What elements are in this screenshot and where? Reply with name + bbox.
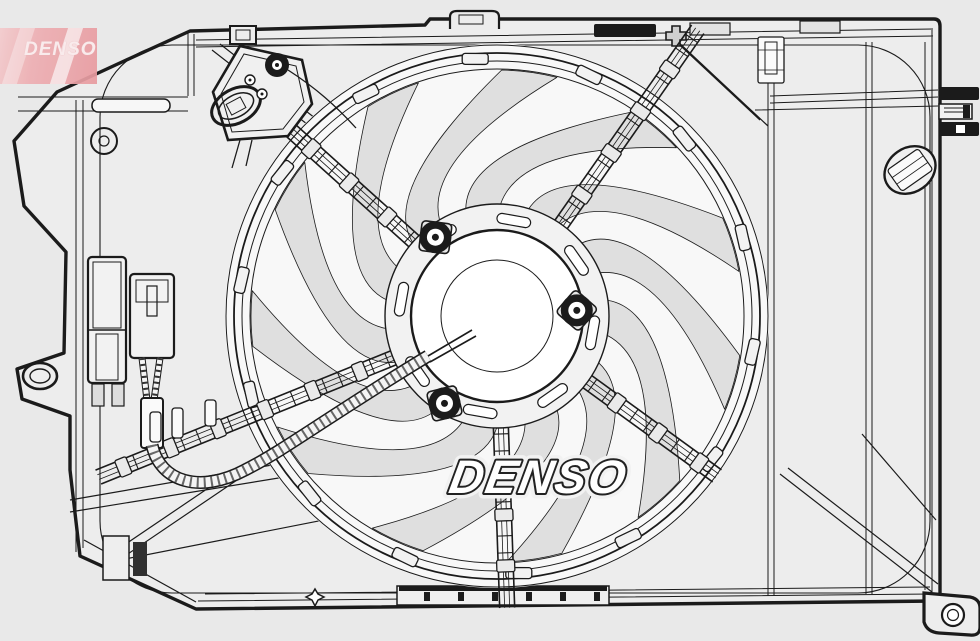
- fan-assembly-drawing: DENSO DENSO: [0, 0, 980, 641]
- top-mounting-tab: [450, 11, 499, 29]
- motor-face: [411, 230, 583, 402]
- left-bracket-slot: [92, 99, 170, 112]
- top-clip-block-1: [690, 23, 730, 35]
- round-connector-center: [275, 63, 279, 67]
- denso-logo-text: DENSO: [24, 39, 97, 61]
- motor-bolt: [419, 220, 452, 253]
- right-clip-top: [939, 87, 979, 100]
- denso-watermark-text: DENSO: [446, 451, 632, 504]
- top-right-connector-block: [758, 37, 784, 83]
- denso-watermark: DENSO DENSO: [446, 451, 632, 504]
- fan-hub: [385, 204, 609, 428]
- top-black-clip: [594, 24, 656, 37]
- motor-bolt: [426, 385, 462, 421]
- screw-1-dot: [249, 79, 252, 82]
- denso-logo: DENSO: [0, 28, 97, 84]
- bottom-left-block: [103, 536, 129, 580]
- bottom-left-dark-block: [133, 542, 147, 576]
- top-clip-block-2: [800, 21, 840, 33]
- right-clip-bottom-window: [956, 125, 965, 133]
- small-bracket: [230, 26, 256, 44]
- mounting-foot-bottom-right: [924, 593, 980, 635]
- connector-block-2: [130, 274, 174, 358]
- screw-2-dot: [261, 93, 264, 96]
- connector-block-1: [88, 257, 126, 406]
- technical-drawing-canvas: DENSO DENSO DENSO: [0, 0, 980, 641]
- rim-clip: [462, 53, 488, 64]
- right-clip-mid-tab: [963, 105, 970, 118]
